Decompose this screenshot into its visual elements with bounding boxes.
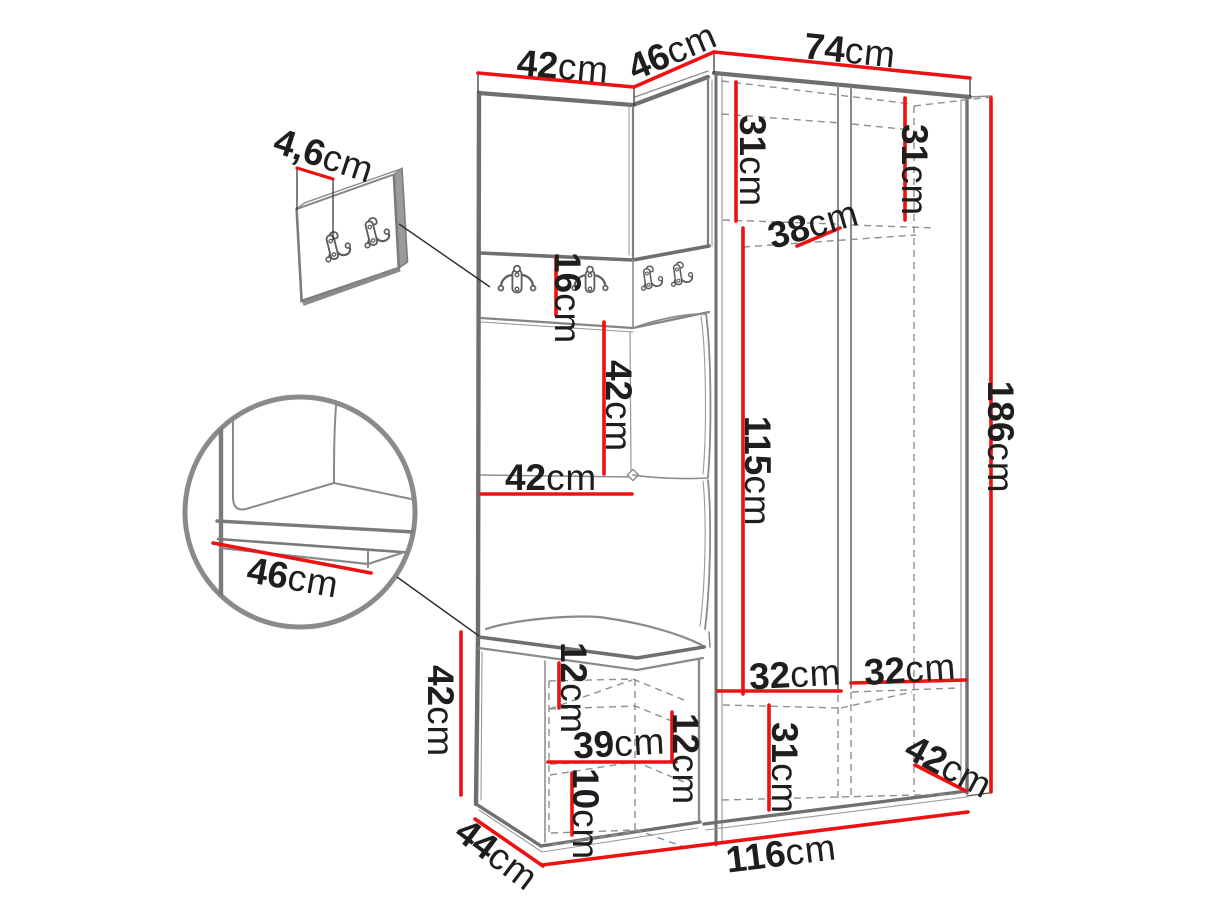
svg-text:10cm: 10cm [565, 768, 606, 860]
svg-text:32cm: 32cm [748, 652, 842, 698]
svg-text:31cm: 31cm [894, 124, 935, 216]
svg-text:39cm: 39cm [572, 721, 666, 767]
svg-text:31cm: 31cm [732, 115, 773, 207]
svg-text:32cm: 32cm [863, 646, 958, 693]
svg-text:42cm: 42cm [420, 665, 461, 757]
svg-text:31cm: 31cm [764, 722, 805, 814]
svg-text:16cm: 16cm [547, 252, 588, 344]
svg-text:42cm: 42cm [505, 457, 597, 498]
svg-text:42cm: 42cm [598, 360, 639, 452]
svg-text:12cm: 12cm [665, 713, 706, 805]
svg-text:186cm: 186cm [980, 381, 1021, 494]
svg-text:42cm: 42cm [515, 42, 610, 91]
svg-text:12cm: 12cm [553, 642, 594, 734]
svg-text:115cm: 115cm [737, 416, 778, 527]
